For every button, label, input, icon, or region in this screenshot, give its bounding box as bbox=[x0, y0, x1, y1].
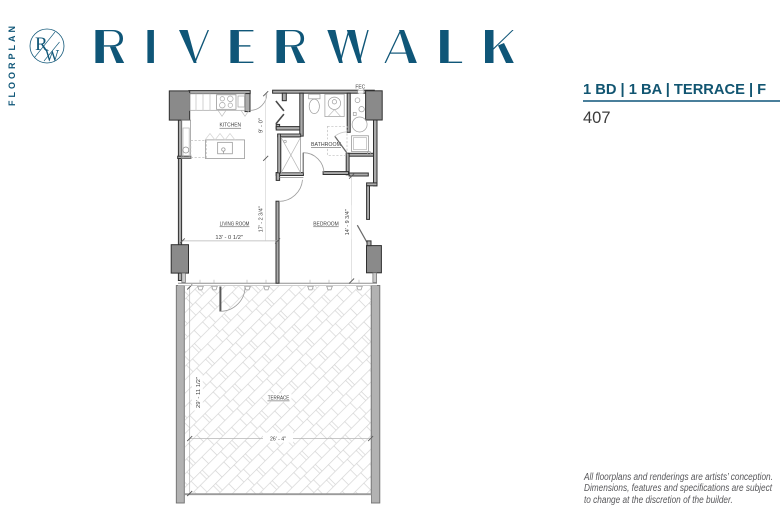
svg-text:13' - 0 1/2": 13' - 0 1/2" bbox=[215, 235, 243, 241]
svg-text:BEDROOM: BEDROOM bbox=[313, 221, 339, 227]
svg-text:29' - 11 1/2": 29' - 11 1/2" bbox=[196, 377, 202, 408]
svg-text:LIVING ROOM: LIVING ROOM bbox=[220, 221, 250, 227]
svg-text:FEC: FEC bbox=[355, 84, 365, 90]
svg-text:26' - 4": 26' - 4" bbox=[270, 437, 286, 443]
svg-text:17' - 2 3/4": 17' - 2 3/4" bbox=[258, 206, 264, 232]
svg-text:9' - 0": 9' - 0" bbox=[258, 118, 264, 133]
svg-text:BATHROOM: BATHROOM bbox=[311, 142, 341, 148]
svg-text:KITCHEN: KITCHEN bbox=[220, 123, 242, 129]
svg-text:14' - 9 3/4": 14' - 9 3/4" bbox=[345, 209, 351, 235]
